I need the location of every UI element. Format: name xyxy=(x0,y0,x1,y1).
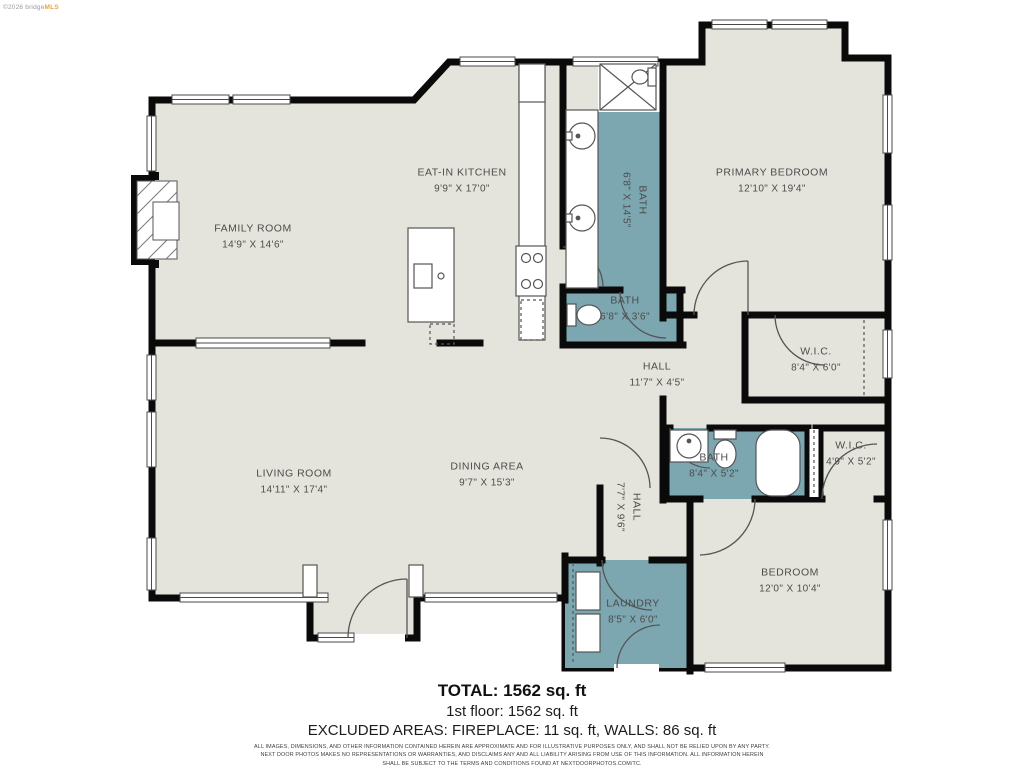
island-faucet xyxy=(438,273,444,279)
window xyxy=(233,95,290,104)
room-label-hall-upper: HALL 11'7" X 4'5" xyxy=(629,359,684,392)
interior-opening xyxy=(196,338,330,348)
room-name: BATH xyxy=(689,450,739,467)
room-dims: 6'8" X 3'6" xyxy=(600,309,650,325)
refrigerator-icon xyxy=(519,64,545,102)
window xyxy=(460,57,515,66)
excluded-areas: EXCLUDED AREAS: FIREPLACE: 11 sq. ft, WA… xyxy=(0,722,1024,739)
room-dims: 9'7" X 15'3" xyxy=(450,475,523,491)
window xyxy=(883,330,892,378)
room-label-bedroom: BEDROOM 12'0" X 10'4" xyxy=(759,565,821,598)
window xyxy=(883,95,892,153)
disclaimer-line: ALL IMAGES, DIMENSIONS, AND OTHER INFORM… xyxy=(0,743,1024,751)
room-dims: 12'0" X 10'4" xyxy=(759,581,821,597)
room-dims: 6'8" X 14'5" xyxy=(618,172,634,228)
floorplan-page: ©2026 bridgeMLS xyxy=(0,0,1024,768)
window xyxy=(147,412,156,467)
window xyxy=(883,205,892,260)
room-label-wic-upper: W.I.C. 8'4" X 6'0" xyxy=(791,344,841,377)
window xyxy=(172,95,229,104)
window xyxy=(147,538,156,590)
room-dims: 12'10" X 19'4" xyxy=(716,181,828,197)
room-dims: 7'7" X 9'6" xyxy=(612,482,628,532)
room-dims: 8'4" X 6'0" xyxy=(791,360,841,376)
firebox xyxy=(153,202,179,240)
room-name: HALL xyxy=(629,359,684,376)
disclaimer-text: ALL IMAGES, DIMENSIONS, AND OTHER INFORM… xyxy=(0,743,1024,768)
room-name: LIVING ROOM xyxy=(256,466,332,483)
room-dims: 9'9" X 17'0" xyxy=(417,181,506,197)
room-name: PRIMARY BEDROOM xyxy=(716,165,828,182)
room-name: DINING AREA xyxy=(450,459,523,476)
room-label-bath-mid: BATH 8'4" X 5'2" xyxy=(689,450,739,483)
room-label-primary-bedroom: PRIMARY BEDROOM 12'10" X 19'4" xyxy=(716,165,828,198)
kitchen-counter xyxy=(519,64,545,340)
laundry-door-gap xyxy=(614,664,659,672)
room-dims: 8'4" X 5'2" xyxy=(689,466,739,482)
wall-pilaster xyxy=(409,565,423,597)
kitchen-island xyxy=(408,228,454,322)
toilet-icon xyxy=(632,68,656,86)
room-label-laundry: LAUNDRY 8'5" X 6'0" xyxy=(606,596,660,629)
window xyxy=(883,520,892,590)
room-name: W.I.C. xyxy=(826,438,876,455)
stove-icon xyxy=(516,246,546,296)
window xyxy=(705,663,785,672)
window xyxy=(712,20,767,29)
island-sink-icon xyxy=(414,264,432,288)
room-dims: 4'9" X 5'2" xyxy=(826,454,876,470)
room-label-hall-lower: HALL 7'7" X 9'6" xyxy=(612,482,645,532)
room-label-bath-long: BATH 6'8" X 14'5" xyxy=(618,172,651,228)
room-dims: 8'5" X 6'0" xyxy=(606,612,660,628)
washer-icon xyxy=(576,572,600,610)
room-label-living-room: LIVING ROOM 14'11" X 17'4" xyxy=(256,466,332,499)
floorplan-drawing xyxy=(0,0,1024,768)
dryer-icon xyxy=(576,614,600,652)
window xyxy=(425,593,557,602)
room-name: HALL xyxy=(628,482,645,532)
room-name: BEDROOM xyxy=(759,565,821,582)
fireplace-jamb-bottom xyxy=(149,260,159,268)
room-label-bath-small: BATH 6'8" X 3'6" xyxy=(600,293,650,326)
wall-pilaster xyxy=(303,565,317,597)
toilet-icon xyxy=(567,304,601,326)
total-area: TOTAL: 1562 sq. ft xyxy=(0,681,1024,701)
room-name: LAUNDRY xyxy=(606,596,660,613)
fireplace xyxy=(130,172,179,268)
room-name: BATH xyxy=(634,172,651,228)
room-name: W.I.C. xyxy=(791,344,841,361)
area-summary: TOTAL: 1562 sq. ft 1st floor: 1562 sq. f… xyxy=(0,681,1024,768)
room-label-dining-area: DINING AREA 9'7" X 15'3" xyxy=(450,459,523,492)
fireplace-jamb-top xyxy=(149,172,159,180)
entry-door-gap xyxy=(351,634,405,642)
bathtub-icon xyxy=(756,430,800,496)
room-label-eat-in-kitchen: EAT-IN KITCHEN 9'9" X 17'0" xyxy=(417,165,506,198)
window xyxy=(147,116,156,171)
room-label-wic-lower: W.I.C. 4'9" X 5'2" xyxy=(826,438,876,471)
room-dims: 14'11" X 17'4" xyxy=(256,482,332,498)
room-name: BATH xyxy=(600,293,650,310)
disclaimer-line: NEXT DOOR PHOTOS MAKES NO REPRESENTATION… xyxy=(0,751,1024,759)
window xyxy=(147,355,156,400)
room-name: FAMILY ROOM xyxy=(214,221,291,238)
disclaimer-line: SHALL BE SUBJECT TO THE TERMS AND CONDIT… xyxy=(0,760,1024,768)
first-floor-area: 1st floor: 1562 sq. ft xyxy=(0,703,1024,720)
room-dims: 14'9" X 14'6" xyxy=(214,237,291,253)
room-label-family-room: FAMILY ROOM 14'9" X 14'6" xyxy=(214,221,291,254)
room-dims: 11'7" X 4'5" xyxy=(629,375,684,391)
window xyxy=(772,20,827,29)
room-name: EAT-IN KITCHEN xyxy=(417,165,506,182)
